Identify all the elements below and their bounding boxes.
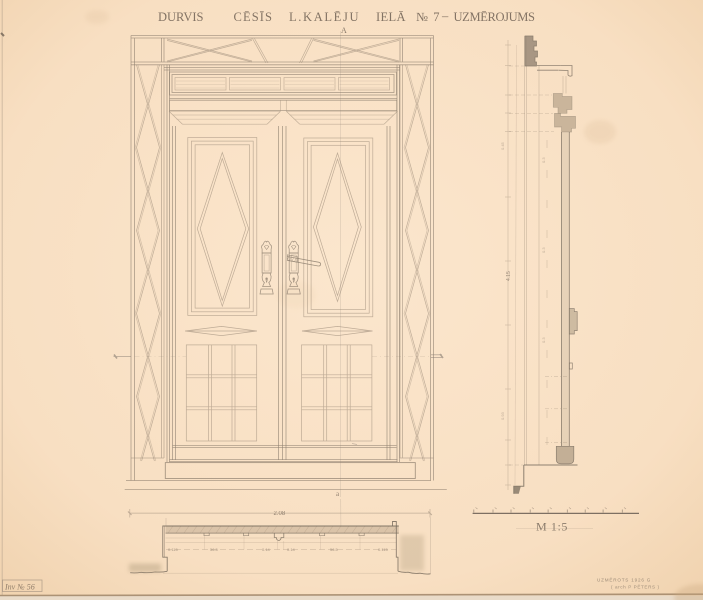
svg-text:0.93: 0.93 <box>500 411 505 420</box>
svg-text:0.3: 0.3 <box>541 157 546 163</box>
svg-text:IELĀ: IELĀ <box>376 10 407 24</box>
svg-text:0.115: 0.115 <box>168 547 178 552</box>
svg-text:4.15: 4.15 <box>506 271 512 281</box>
svg-text:0.14: 0.14 <box>262 547 271 552</box>
svg-text:0.45: 0.45 <box>500 141 505 150</box>
svg-text:2.08: 2.08 <box>274 511 286 517</box>
svg-text:Inv № 56: Inv № 56 <box>4 583 35 592</box>
svg-text:0.3: 0.3 <box>541 247 546 253</box>
svg-text:CĒSĪS: CĒSĪS <box>234 10 274 24</box>
svg-text:A: A <box>341 26 347 35</box>
svg-text:0.115: 0.115 <box>378 547 388 552</box>
svg-text:56.5: 56.5 <box>210 547 219 552</box>
svg-text:UZMĒROTS 1926 G: UZMĒROTS 1926 G <box>597 577 651 583</box>
svg-text:№ 7: № 7 <box>416 10 441 24</box>
svg-text:0.14: 0.14 <box>287 547 296 552</box>
svg-text:DURVIS: DURVIS <box>158 10 205 24</box>
svg-text:0.3: 0.3 <box>541 337 546 343</box>
svg-text:UZMĒROJUMS: UZMĒROJUMS <box>454 10 537 24</box>
svg-text:L.KALĒJU: L.KALĒJU <box>289 10 360 24</box>
svg-text:–: – <box>441 9 450 23</box>
svg-text:M 1:5: M 1:5 <box>536 520 568 534</box>
svg-text:( arch P PĒTERS ): ( arch P PĒTERS ) <box>611 584 660 590</box>
svg-text:56.5: 56.5 <box>330 547 339 552</box>
